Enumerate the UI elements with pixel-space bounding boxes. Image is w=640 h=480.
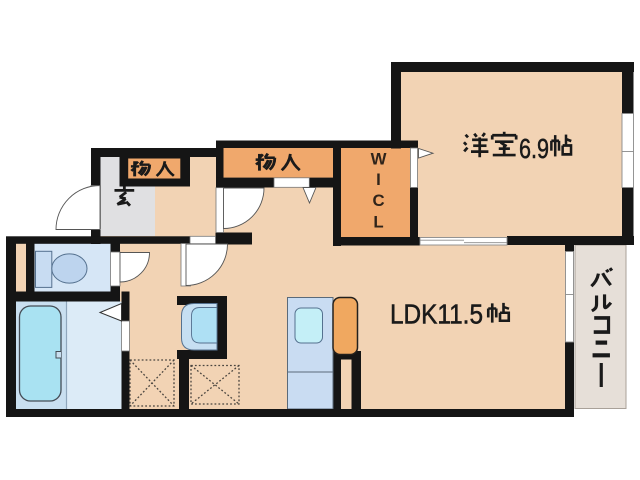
svg-text:LDK11.5: LDK11.5 (390, 299, 483, 330)
svg-text:C: C (372, 191, 384, 210)
svg-text:W: W (371, 149, 387, 168)
svg-text:6.9: 6.9 (519, 133, 549, 164)
svg-text:L: L (373, 212, 383, 231)
svg-text:I: I (376, 170, 381, 189)
